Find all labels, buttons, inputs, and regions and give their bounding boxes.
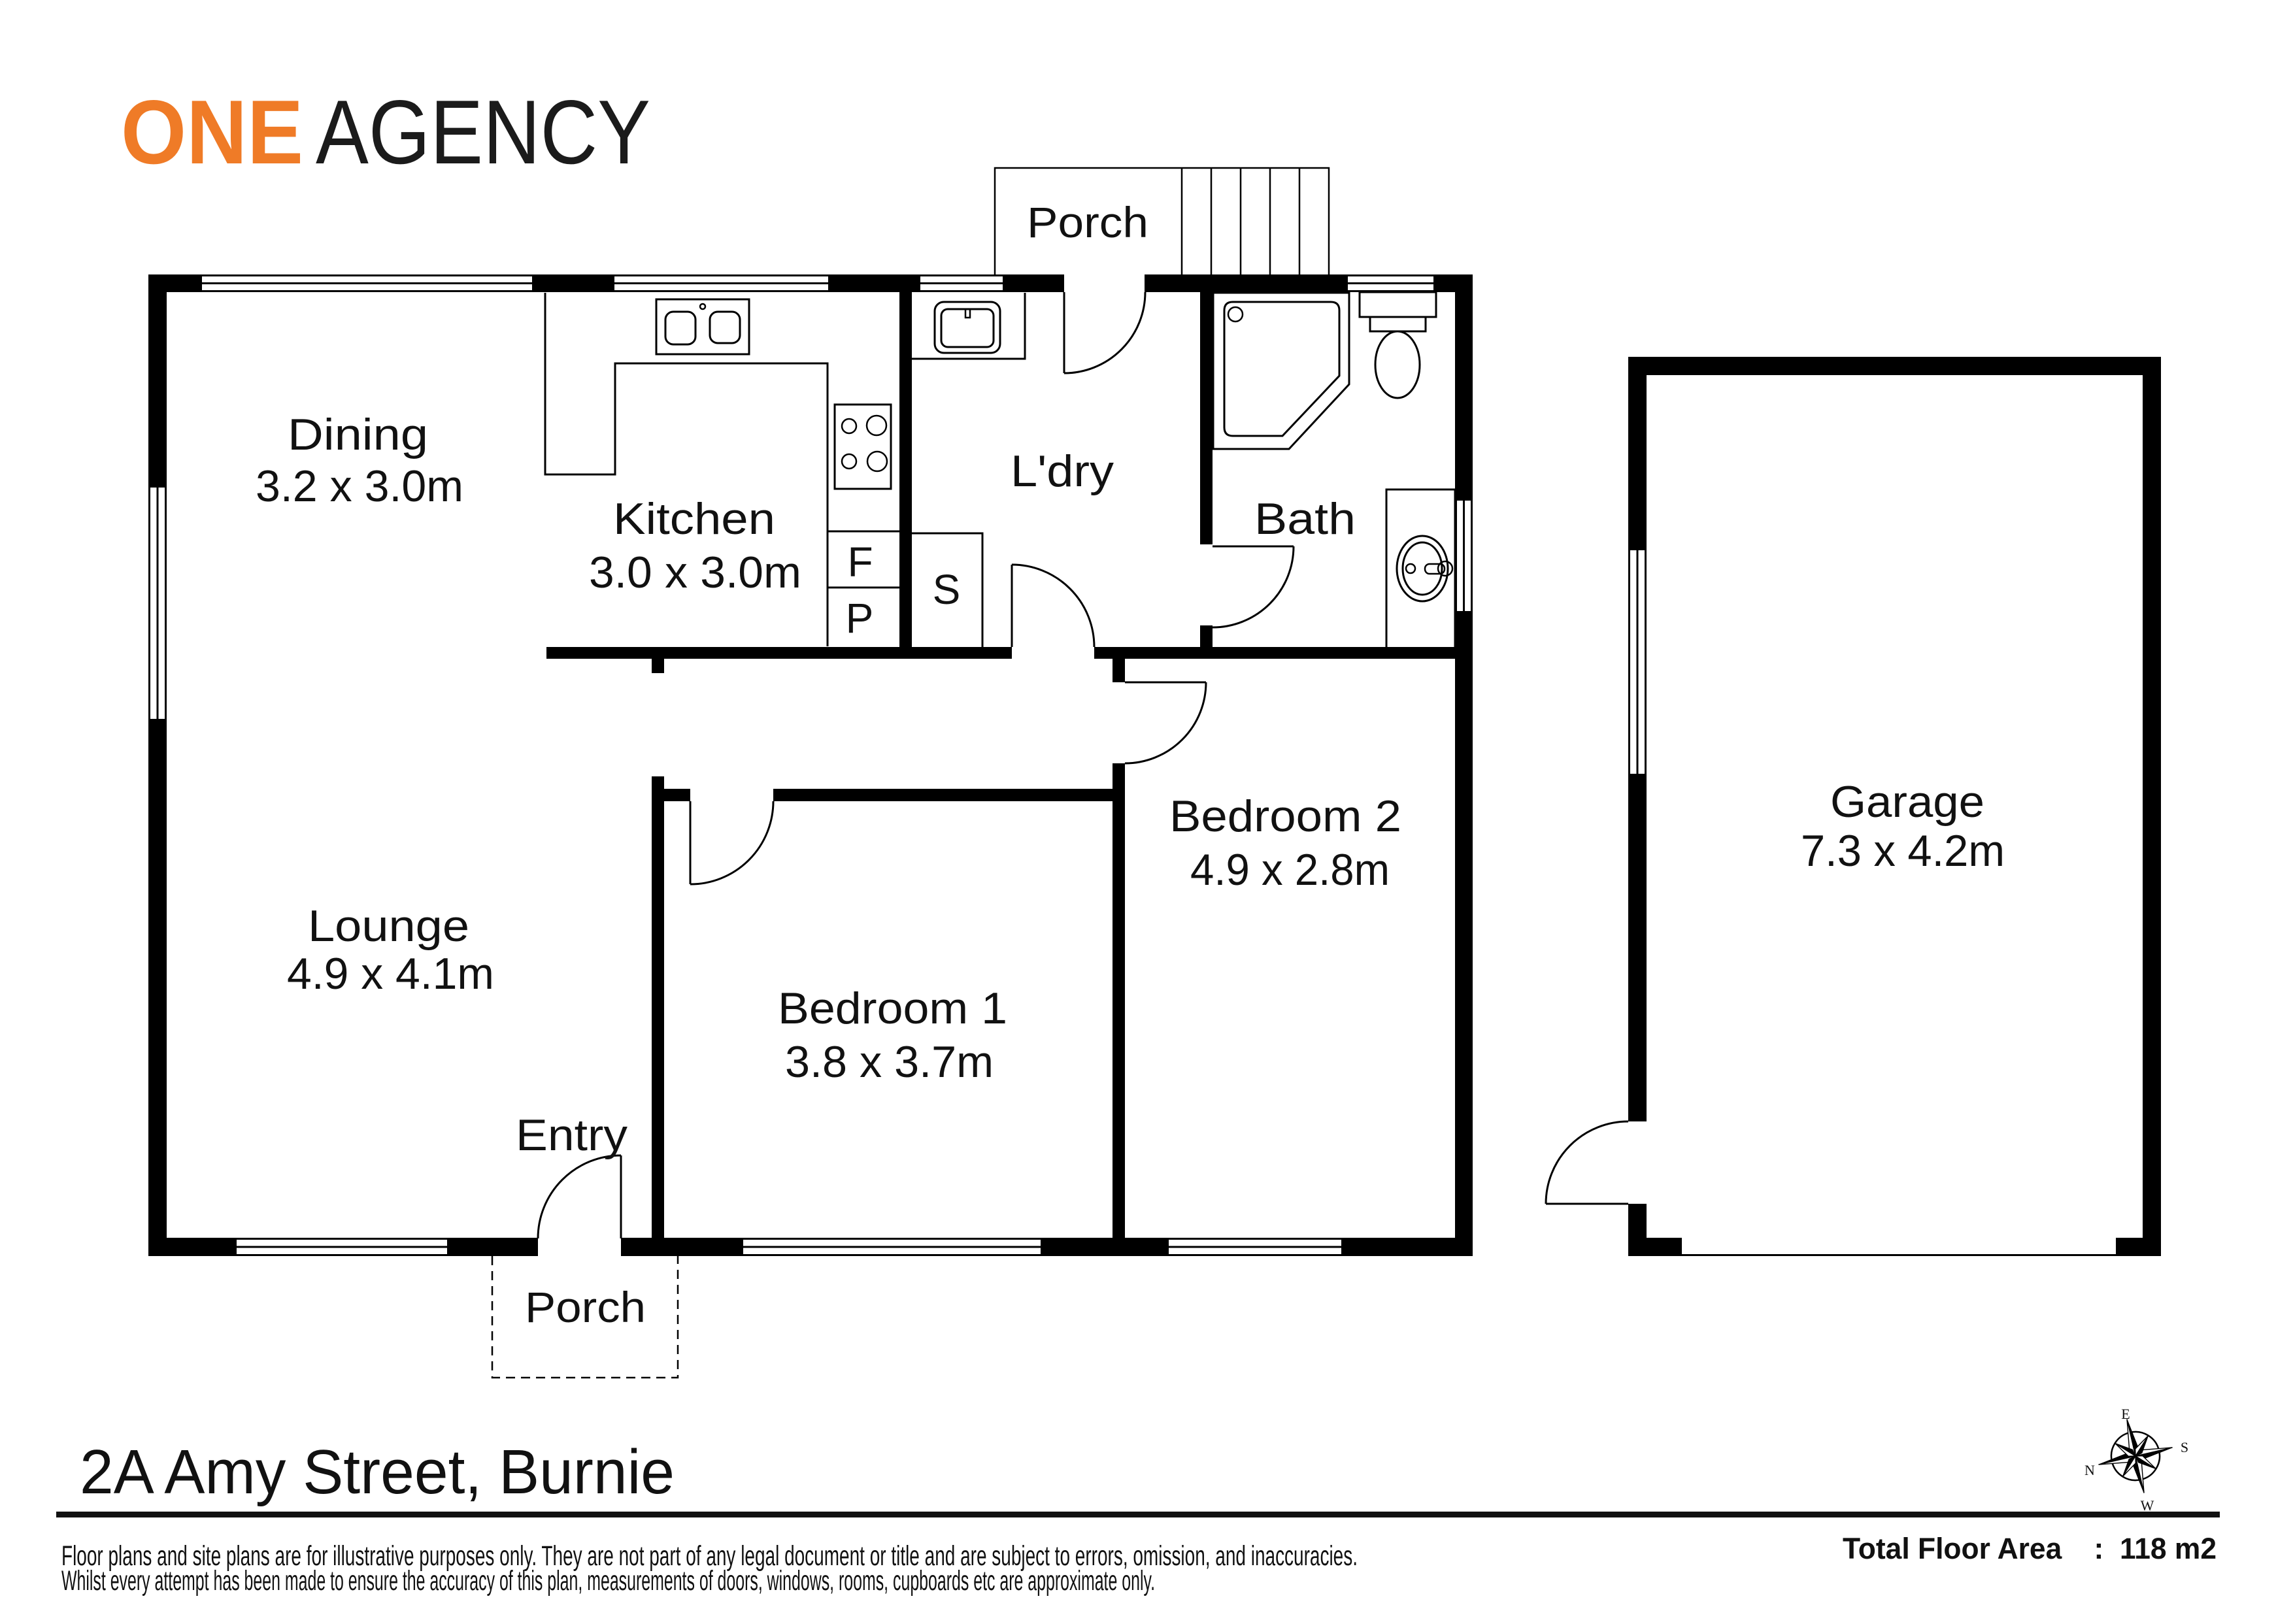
- svg-text:Dining: Dining: [288, 410, 428, 459]
- svg-text:L'dry: L'dry: [1011, 446, 1114, 496]
- svg-text:2A Amy Street, Burnie: 2A Amy Street, Burnie: [80, 1437, 675, 1507]
- svg-text:Whilst every attempt has been: Whilst every attempt has been made to en…: [61, 1565, 1155, 1597]
- svg-text:7.3 x 4.2m: 7.3 x 4.2m: [1801, 826, 2005, 876]
- svg-text:Bath: Bath: [1254, 494, 1356, 544]
- svg-text:S: S: [2181, 1439, 2188, 1455]
- svg-text:S: S: [933, 566, 961, 613]
- svg-text:Bedroom 1: Bedroom 1: [778, 984, 1007, 1033]
- svg-text:4.9 x 4.1m: 4.9 x 4.1m: [287, 949, 494, 999]
- svg-text:Bedroom 2: Bedroom 2: [1169, 791, 1401, 841]
- svg-text:Porch: Porch: [1027, 198, 1148, 246]
- svg-text:Porch: Porch: [525, 1283, 646, 1331]
- svg-text:3.8 x 3.7m: 3.8 x 3.7m: [785, 1037, 994, 1087]
- svg-text:F: F: [847, 539, 873, 586]
- svg-text:Lounge: Lounge: [308, 901, 469, 951]
- svg-text:E: E: [2121, 1406, 2130, 1422]
- svg-text:P: P: [846, 595, 874, 642]
- svg-text:ONE: ONE: [121, 82, 303, 183]
- svg-text:3.2 x 3.0m: 3.2 x 3.0m: [256, 461, 463, 511]
- svg-text:N: N: [2084, 1462, 2095, 1478]
- svg-text:3.0 x 3.0m: 3.0 x 3.0m: [589, 548, 801, 597]
- svg-text:Entry: Entry: [516, 1110, 628, 1160]
- svg-text:Kitchen: Kitchen: [613, 494, 775, 544]
- svg-text:W: W: [2141, 1497, 2154, 1514]
- svg-text:AGENCY: AGENCY: [316, 82, 650, 183]
- svg-text:Total Floor Area : 118 m2: Total Floor Area : 118 m2: [1843, 1532, 2217, 1565]
- svg-text:4.9 x 2.8m: 4.9 x 2.8m: [1190, 845, 1390, 895]
- svg-text:Garage: Garage: [1830, 777, 1984, 827]
